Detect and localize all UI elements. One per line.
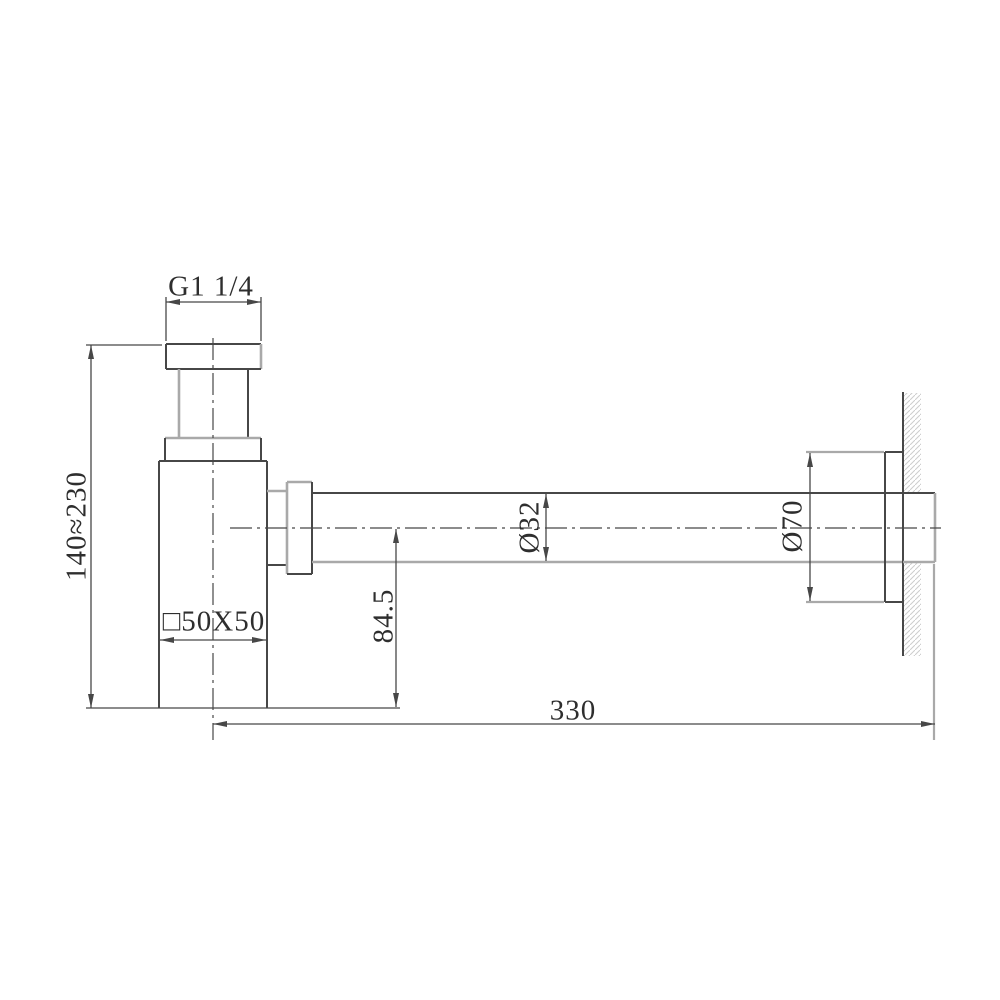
- thread-size-label: G1 1/4: [168, 271, 254, 304]
- pipe-diameter-label: Ø32: [514, 501, 547, 554]
- height-range-label: 140≈230: [61, 471, 94, 581]
- wall-length-label: 330: [550, 695, 597, 728]
- outlet-drop-label: 84.5: [368, 589, 401, 644]
- wall-flange-outline: [885, 452, 903, 602]
- wall-hatch-lower: [904, 563, 921, 656]
- technical-drawing-canvas: G1 1/4 140≈230 □50X50 84.5 Ø32 Ø70 330: [0, 0, 1000, 1000]
- centerlines: [213, 338, 941, 740]
- wall-hatch-upper: [904, 393, 921, 492]
- flange-diameter-label: Ø70: [777, 500, 810, 553]
- dim-height-range: [86, 345, 400, 708]
- dim-thread: [166, 297, 261, 341]
- wall-section: [903, 392, 935, 656]
- dim-flange-diameter: [806, 452, 884, 602]
- body-section-label: □50X50: [163, 606, 265, 639]
- drawing-linework: [0, 0, 1000, 1000]
